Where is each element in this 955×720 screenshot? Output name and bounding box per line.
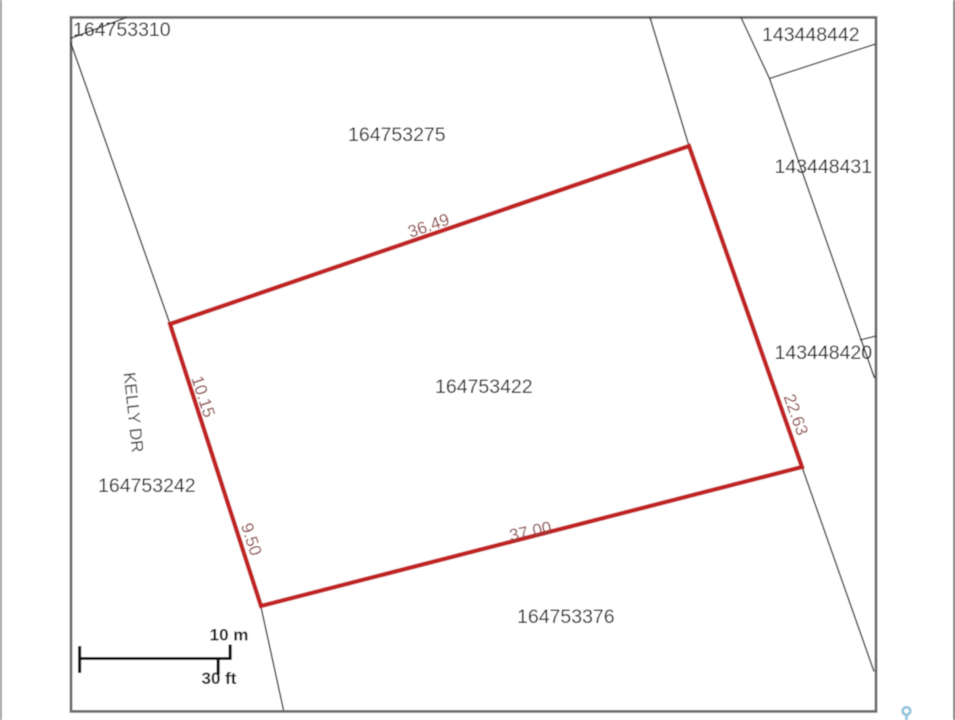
svg-text:164753376: 164753376: [517, 606, 615, 628]
svg-text:164753242: 164753242: [98, 475, 196, 497]
svg-text:30 ft: 30 ft: [202, 669, 237, 688]
svg-text:164753422: 164753422: [435, 376, 533, 398]
svg-text:143448420: 143448420: [775, 342, 873, 364]
svg-text:10 m: 10 m: [210, 626, 249, 645]
svg-text:164753275: 164753275: [348, 124, 446, 146]
svg-text:143448431: 143448431: [775, 156, 873, 178]
svg-text:143448442: 143448442: [762, 24, 860, 46]
svg-text:164753310: 164753310: [73, 19, 171, 41]
